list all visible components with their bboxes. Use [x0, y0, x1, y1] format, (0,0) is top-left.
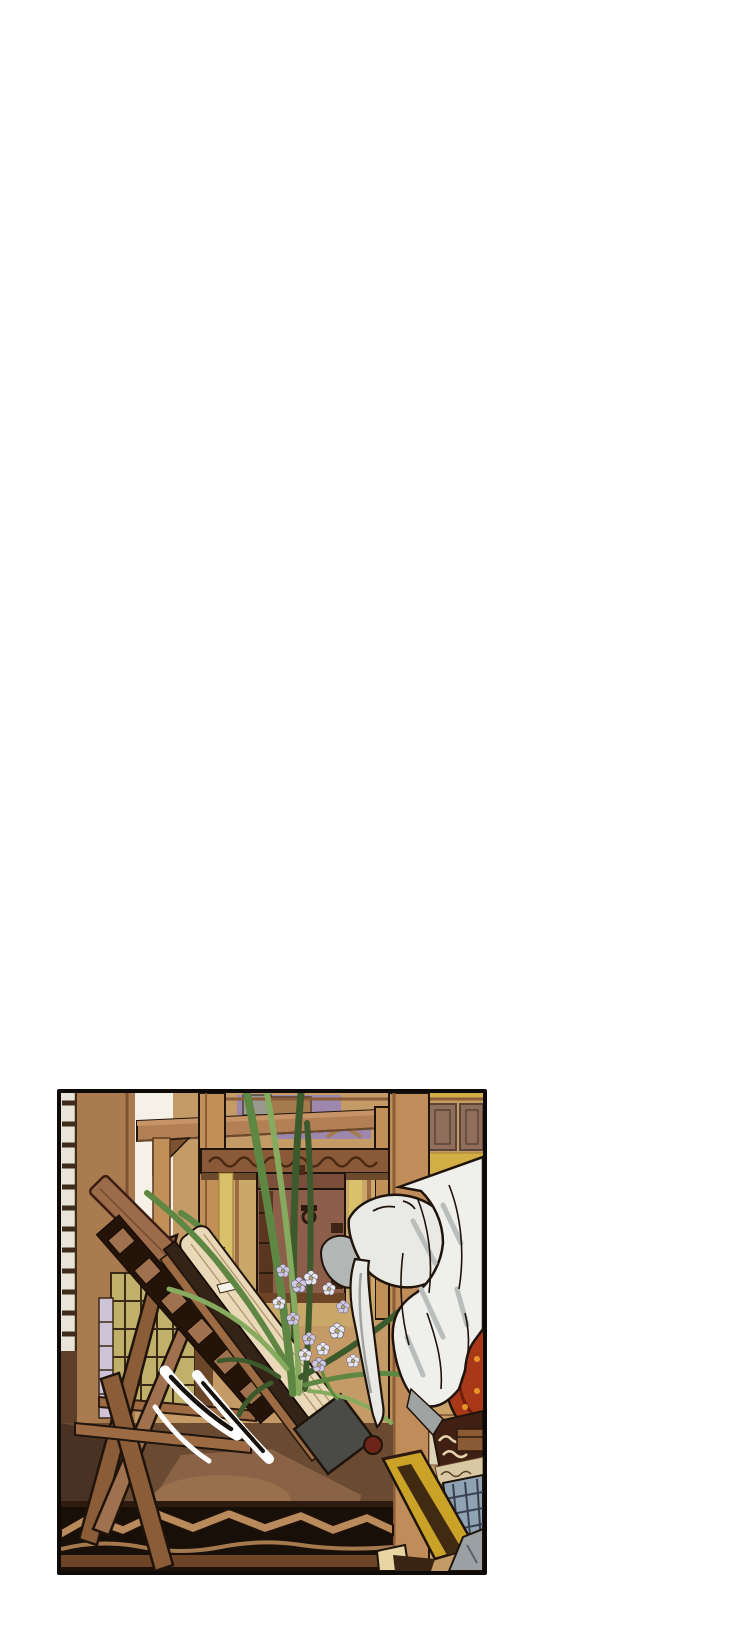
red-knob: [364, 1436, 382, 1454]
page: A pale gloved hand reaches down to touch…: [0, 0, 740, 1632]
mini-chest: [457, 1429, 483, 1451]
comic-panel: A pale gloved hand reaches down to touch…: [57, 1089, 487, 1575]
comic-panel-illustration: A pale gloved hand reaches down to touch…: [61, 1093, 483, 1571]
chest-lid: [257, 1173, 345, 1189]
